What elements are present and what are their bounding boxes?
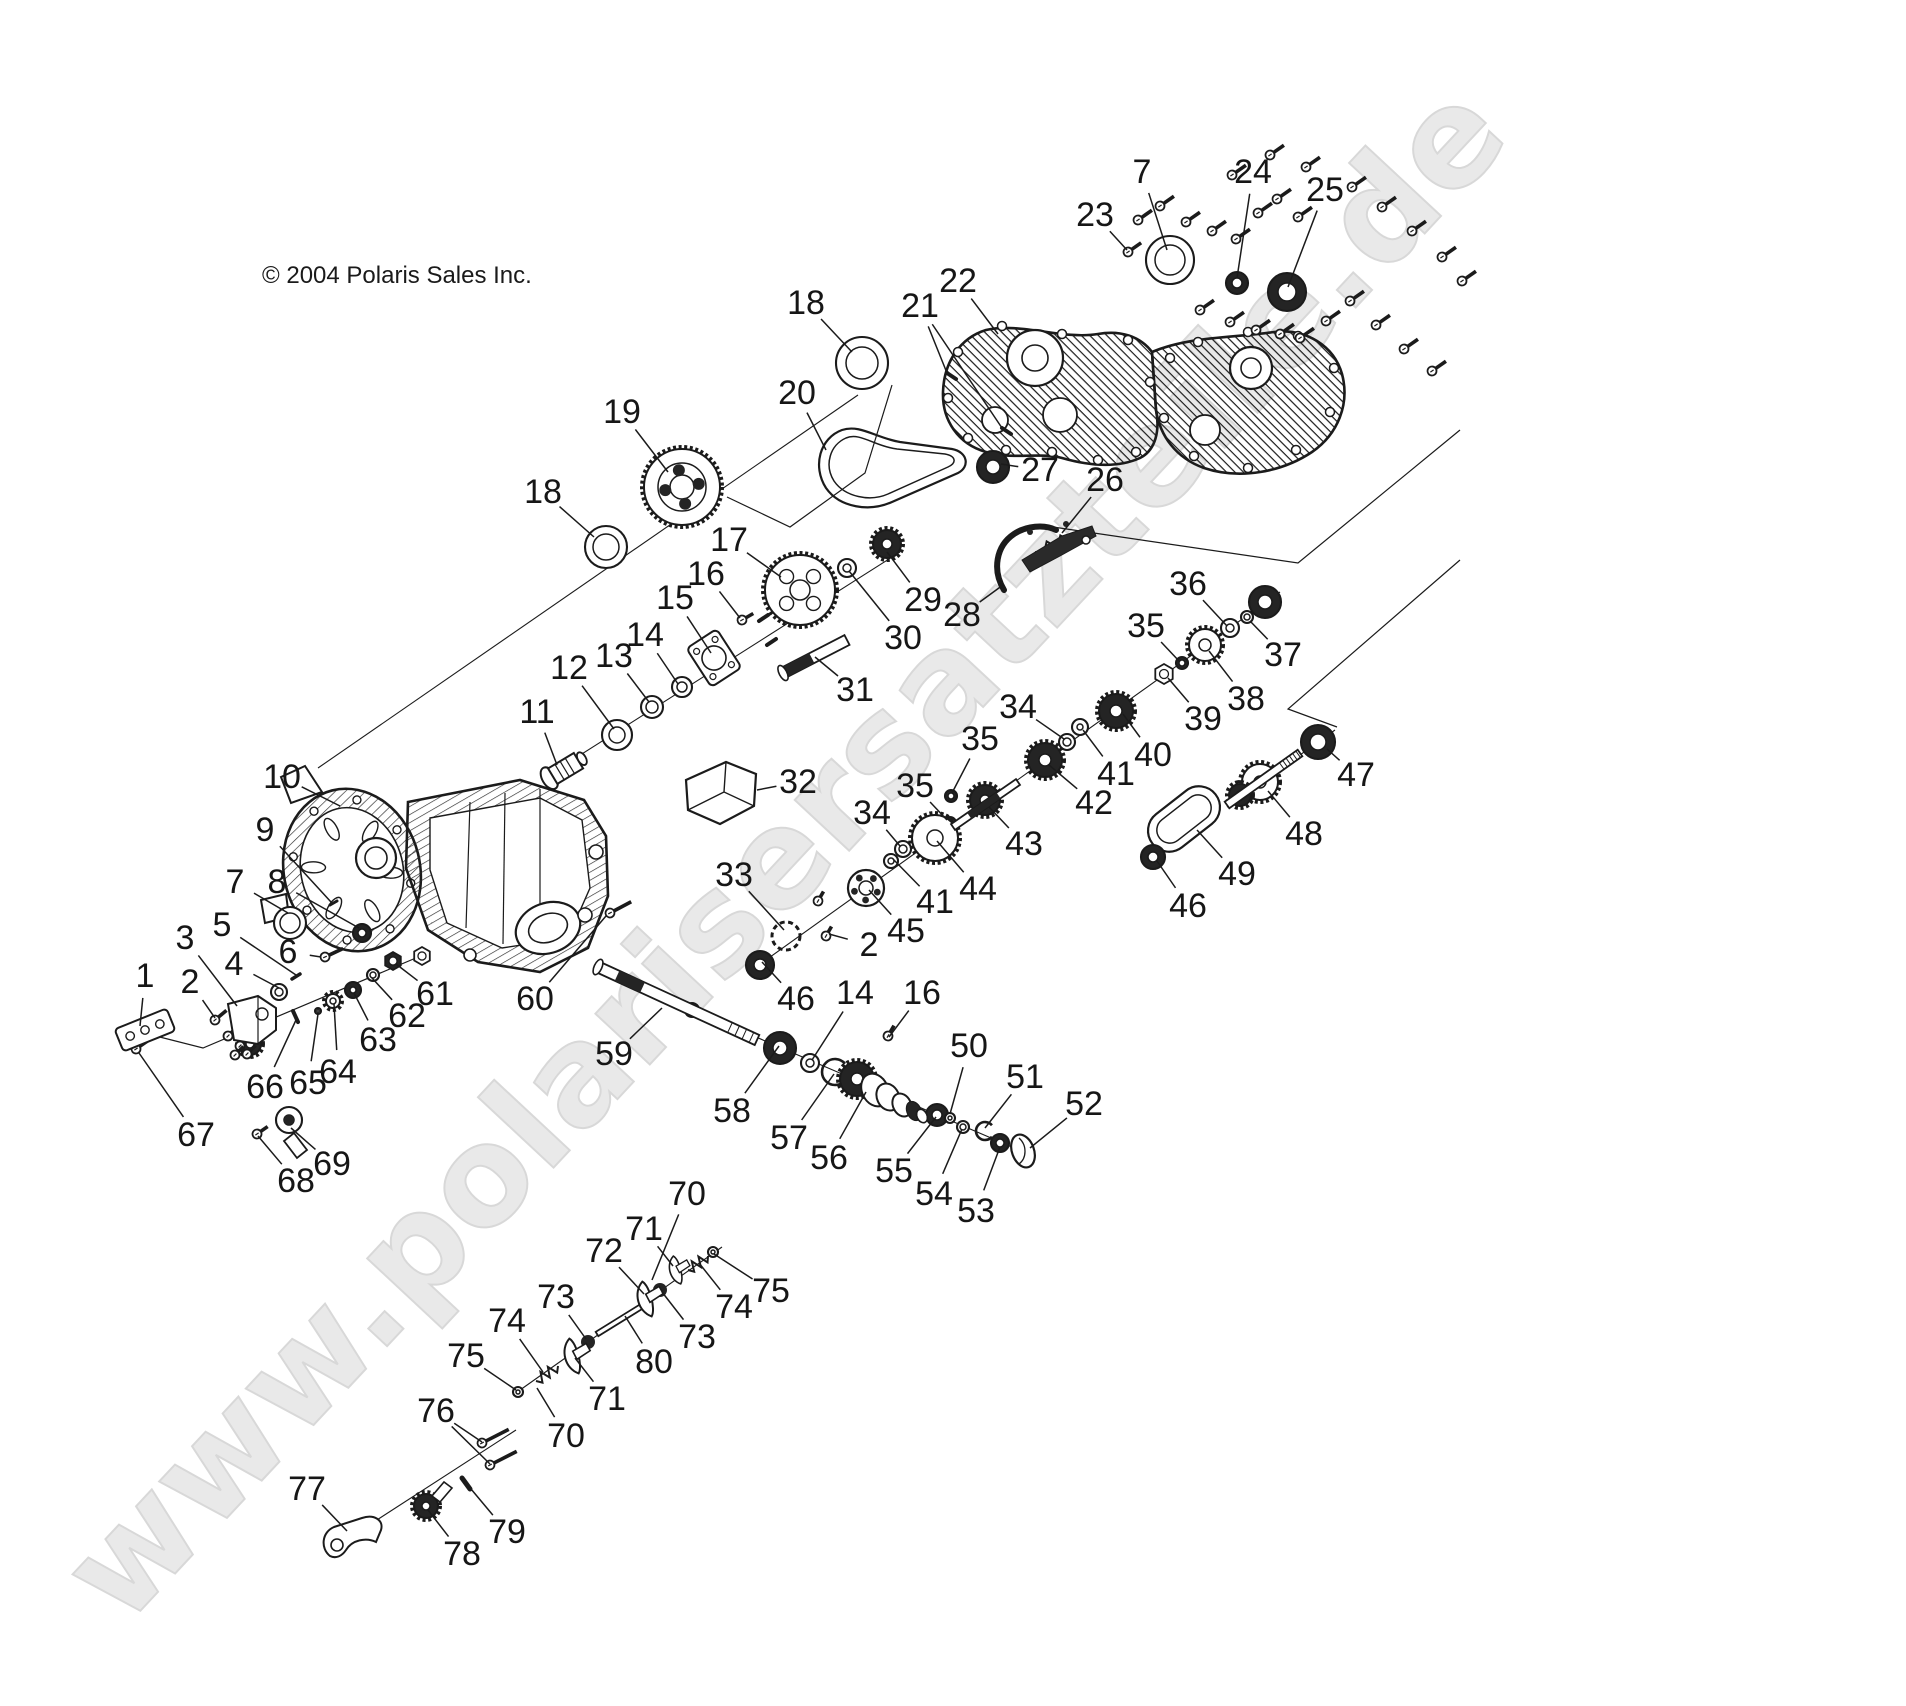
gasket-plate bbox=[686, 629, 741, 687]
gearcase-cover bbox=[943, 322, 1344, 474]
shift-lever bbox=[324, 1482, 452, 1557]
parts-diagram-page: www.polarisersatzteile.de © 2004 Polaris… bbox=[0, 0, 1906, 1706]
pawl-assembly bbox=[997, 521, 1096, 590]
roller-clutch bbox=[838, 1060, 929, 1124]
bracket bbox=[686, 762, 756, 824]
shafts bbox=[591, 633, 1302, 1336]
exploded-diagram-artwork bbox=[0, 0, 1906, 1706]
drive-belt bbox=[819, 429, 966, 508]
main-gearcase bbox=[261, 766, 608, 972]
fill-plug bbox=[537, 746, 591, 792]
mount-bracket bbox=[115, 1008, 176, 1051]
gears-sprockets bbox=[237, 447, 1280, 1520]
copyright-text: © 2004 Polaris Sales Inc. bbox=[262, 262, 532, 290]
end-cap-disc bbox=[1007, 1131, 1039, 1170]
